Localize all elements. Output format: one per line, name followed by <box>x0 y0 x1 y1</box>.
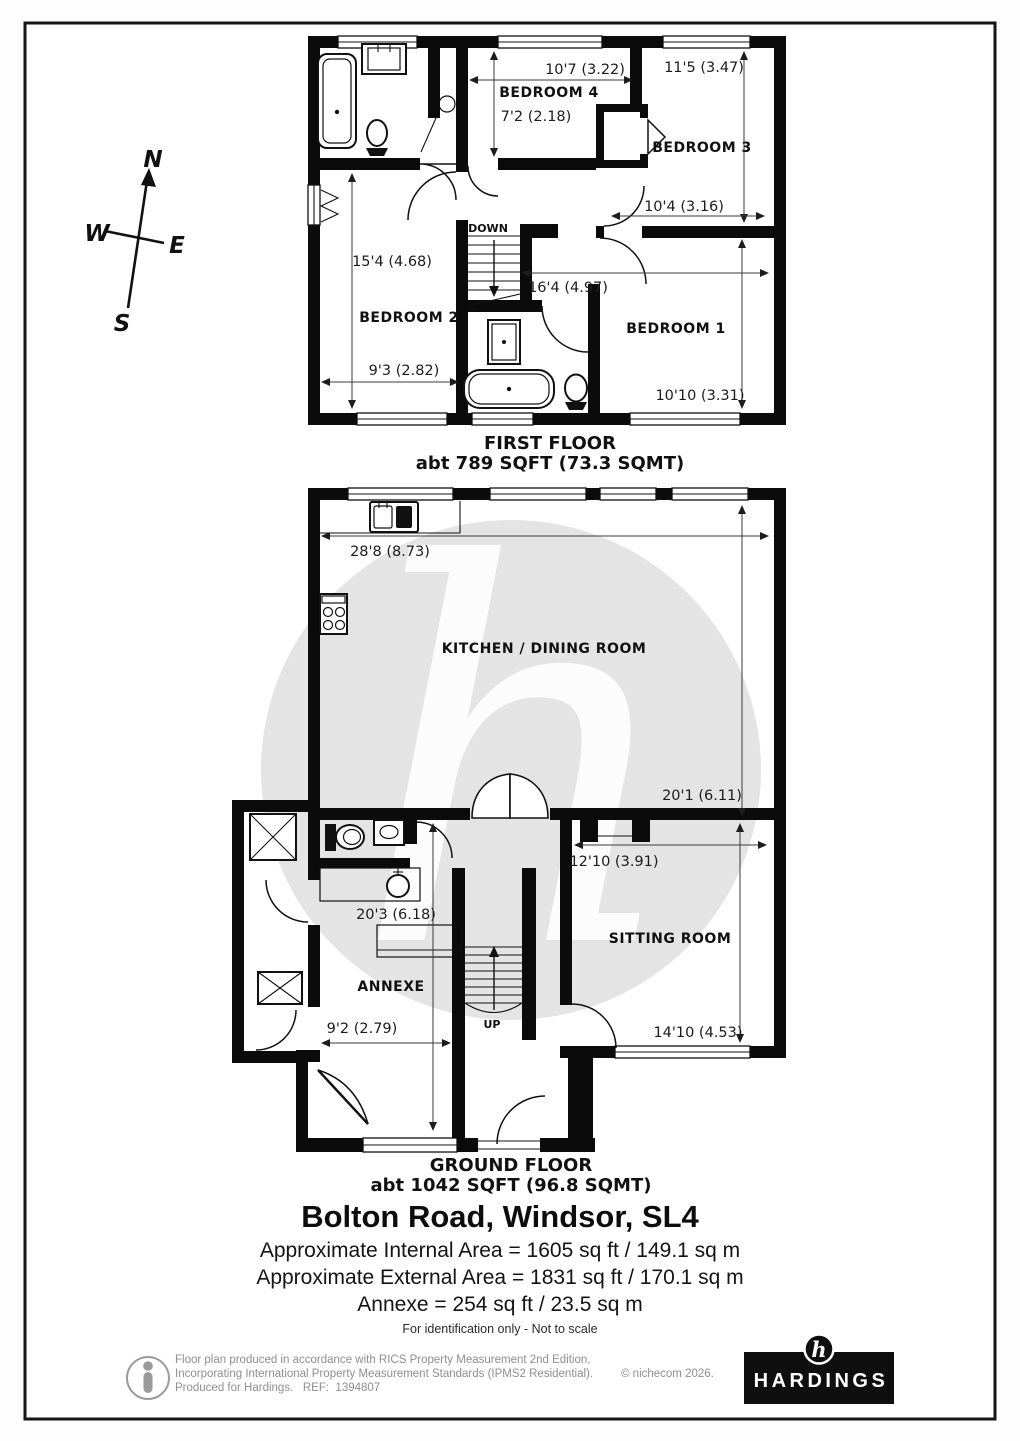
annexe-width-dim: 9'2 (2.79) <box>327 1021 398 1037</box>
compass-north: N <box>143 147 162 173</box>
sitting-width-dim: 12'10 (3.91) <box>569 854 658 870</box>
hardings-logo-text: HARDINGS <box>754 1370 889 1392</box>
annexe-area: Annexe = 254 sq ft / 23.5 sq m <box>357 1293 642 1316</box>
bedroom3-height-dim: 11'5 (3.47) <box>664 60 744 76</box>
compass-south: S <box>114 311 131 337</box>
internal-area: Approximate Internal Area = 1605 sq ft /… <box>260 1239 740 1262</box>
compass-west: W <box>84 221 111 247</box>
footer-line1: Floor plan produced in accordance with R… <box>175 1354 591 1366</box>
bedroom2-width-dim: 9'3 (2.82) <box>369 363 440 379</box>
kitchen-height-dim: 20'1 (6.11) <box>662 788 742 804</box>
footer-line3: Produced for Hardings. REF: 1394807 <box>175 1382 380 1394</box>
identification-note: For identification only - Not to scale <box>402 1322 597 1336</box>
first-floor-title: FIRST FLOOR <box>484 433 616 454</box>
stairs-down-label: DOWN <box>468 222 508 235</box>
stairs-up-label: UP <box>484 1018 501 1031</box>
bedroom4-label: BEDROOM 4 <box>499 85 599 101</box>
bedroom3-label: BEDROOM 3 <box>652 140 752 156</box>
kitchen-width-dim: 28'8 (8.73) <box>350 544 430 560</box>
footer-copyright: © nichecom 2026. <box>621 1368 714 1380</box>
bedroom1-width-dim: 16'4 (4.97) <box>528 280 608 296</box>
annexe-height-dim: 20'3 (6.18) <box>356 907 436 923</box>
bedroom2-label: BEDROOM 2 <box>359 310 459 326</box>
bedroom2-height-dim: 15'4 (4.68) <box>352 254 432 270</box>
footer-line2: Incorporating International Property Mea… <box>175 1368 593 1380</box>
floorplan-canvas: h N W E S <box>0 0 1020 1441</box>
bedroom1-label: BEDROOM 1 <box>626 321 726 337</box>
external-area: Approximate External Area = 1831 sq ft /… <box>256 1266 743 1289</box>
bedroom1-height-dim: 10'10 (3.31) <box>655 388 744 404</box>
bedroom4-depth-dim: 7'2 (2.18) <box>501 109 572 125</box>
bedroom4-width-dim: 10'7 (3.22) <box>545 62 625 78</box>
sitting-height-dim: 14'10 (4.53) <box>653 1025 742 1041</box>
sitting-room-label: SITTING ROOM <box>609 931 732 947</box>
floorplan-page: h N W E S <box>0 0 1020 1441</box>
bedroom3-width-dim: 10'4 (3.16) <box>644 199 724 215</box>
ground-floor-area: abt 1042 SQFT (96.8 SQMT) <box>371 1175 652 1196</box>
compass-east: E <box>169 233 185 259</box>
hardings-logo-initial: h <box>811 1337 826 1362</box>
property-address: Bolton Road, Windsor, SL4 <box>301 1199 699 1234</box>
annexe-label: ANNEXE <box>357 979 424 995</box>
first-floor-area: abt 789 SQFT (73.3 SQMT) <box>416 453 684 474</box>
ground-floor-title: GROUND FLOOR <box>430 1155 593 1176</box>
kitchen-label: KITCHEN / DINING ROOM <box>442 641 647 657</box>
